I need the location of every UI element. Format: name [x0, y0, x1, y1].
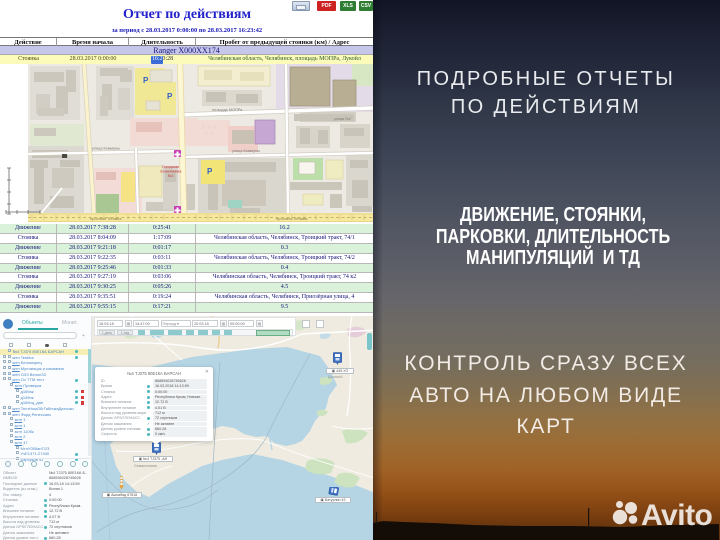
svg-text:улица ПоГ: улица ПоГ — [334, 117, 351, 121]
svg-text:Avito: Avito — [641, 499, 713, 532]
svg-text:проспект Ленина: проспект Ленина — [90, 216, 122, 221]
svg-text:площадь МОПРа: площадь МОПРа — [212, 108, 243, 112]
svg-text:Севастополь: Севастополь — [134, 464, 157, 468]
svg-text:Городская: Городская — [162, 165, 179, 169]
svg-text:P: P — [167, 92, 173, 101]
svg-text:№1: №1 — [168, 174, 174, 178]
svg-text:проспект Ленина: проспект Ленина — [276, 216, 308, 221]
svg-text:улица Коммуны: улица Коммуны — [92, 147, 120, 151]
svg-text:Джанкой: Джанкой — [328, 375, 342, 379]
svg-text:P: P — [207, 167, 213, 176]
svg-text:поликлиника: поликлиника — [160, 170, 181, 174]
svg-text:улица Коммуны: улица Коммуны — [232, 149, 260, 153]
svg-text:P: P — [143, 76, 149, 85]
